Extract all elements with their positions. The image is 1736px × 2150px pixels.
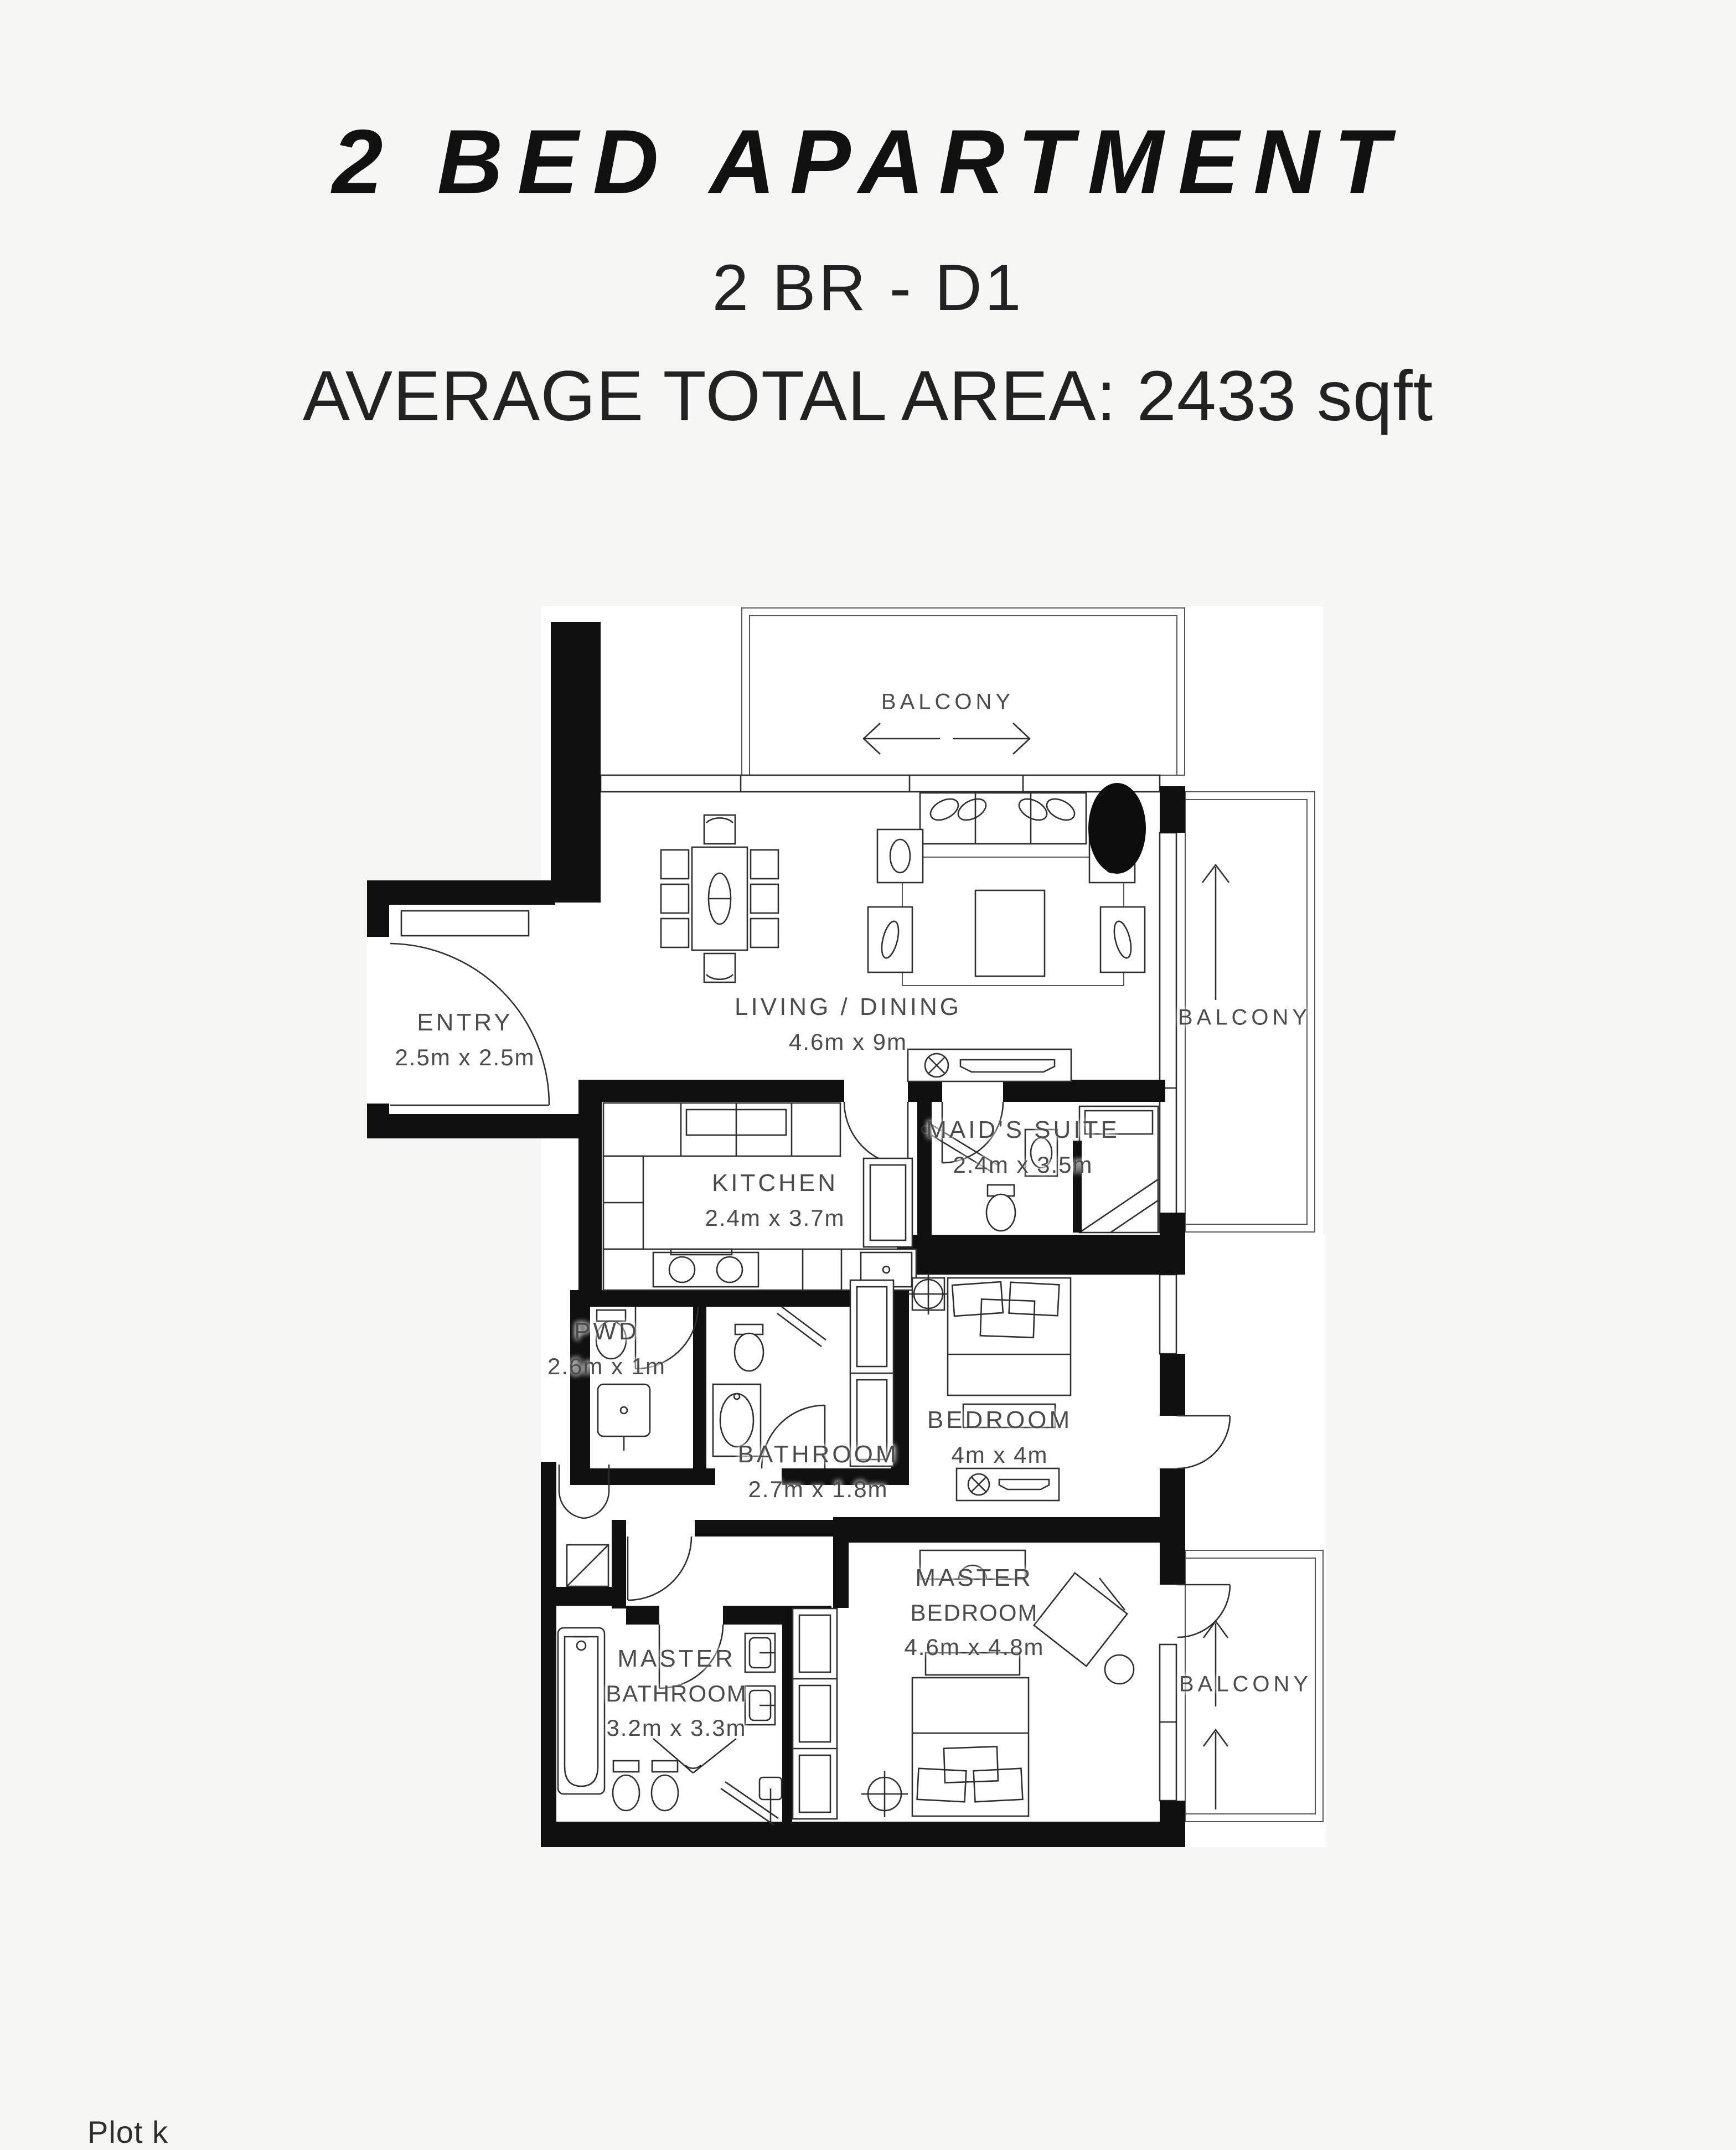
room-label-bathroom: BATHROOM 2.7m x 1.8m [738, 1441, 899, 1503]
room-label-entry: ENTRY 2.5m x 2.5m [395, 1009, 535, 1071]
room-label-kitchen: KITCHEN 2.4m x 3.7m [705, 1169, 845, 1231]
room-label-master-bedroom: MASTER BEDROOM 4.6m x 4.8m [904, 1564, 1044, 1661]
room-label-living-dining: LIVING / DINING 4.6m x 9m [735, 993, 962, 1055]
floorplan-page: 2 BED APARTMENT 2 BR - D1 AVERAGE TOTAL … [0, 0, 1736, 2143]
clipped-bottom-text: Plot k [87, 2114, 168, 2150]
entry-console-table [401, 911, 529, 936]
room-label-balcony-top: BALCONY [881, 690, 1014, 715]
planter-dot [1088, 783, 1146, 874]
room-label-pwd: PWD 2.6m x 1m [547, 1318, 666, 1380]
floorplan-drawing [0, 0, 1736, 2143]
room-label-balcony-bottom: BALCONY [1179, 1672, 1312, 1697]
room-label-master-bathroom: MASTER BATHROOM 3.2m x 3.3m [606, 1645, 747, 1741]
room-label-balcony-right: BALCONY [1178, 1006, 1311, 1030]
room-label-bedroom: BEDROOM 4m x 4m [927, 1406, 1072, 1468]
room-label-maids-suite: MAID'S SUITE 2.4m x 3.5m [926, 1116, 1120, 1178]
